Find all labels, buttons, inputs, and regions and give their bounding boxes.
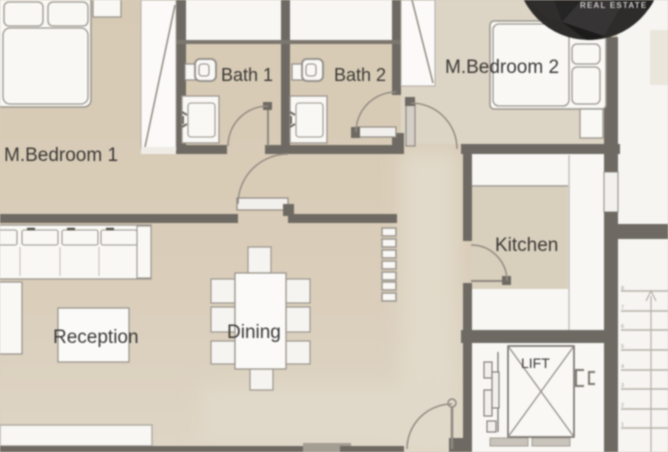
svg-text:M.Bedroom 2: M.Bedroom 2 (445, 57, 559, 78)
svg-text:3: 3 (621, 383, 624, 389)
svg-text:1: 1 (621, 422, 624, 428)
svg-text:LIFT: LIFT (521, 355, 550, 371)
svg-text:2: 2 (621, 403, 624, 409)
svg-text:7: 7 (621, 305, 624, 311)
svg-text:Reception: Reception (53, 327, 139, 348)
svg-text:REAL ESTATE: REAL ESTATE (580, 1, 647, 10)
svg-text:6: 6 (621, 324, 624, 330)
svg-text:8: 8 (621, 286, 624, 292)
svg-text:Dining: Dining (227, 322, 281, 343)
svg-text:5: 5 (621, 344, 624, 350)
svg-text:Bath 1: Bath 1 (221, 65, 273, 85)
svg-text:M.Bedroom 1: M.Bedroom 1 (4, 145, 118, 166)
svg-text:Kitchen: Kitchen (495, 235, 558, 256)
svg-text:Bath 2: Bath 2 (334, 65, 386, 85)
svg-text:4: 4 (621, 364, 624, 370)
